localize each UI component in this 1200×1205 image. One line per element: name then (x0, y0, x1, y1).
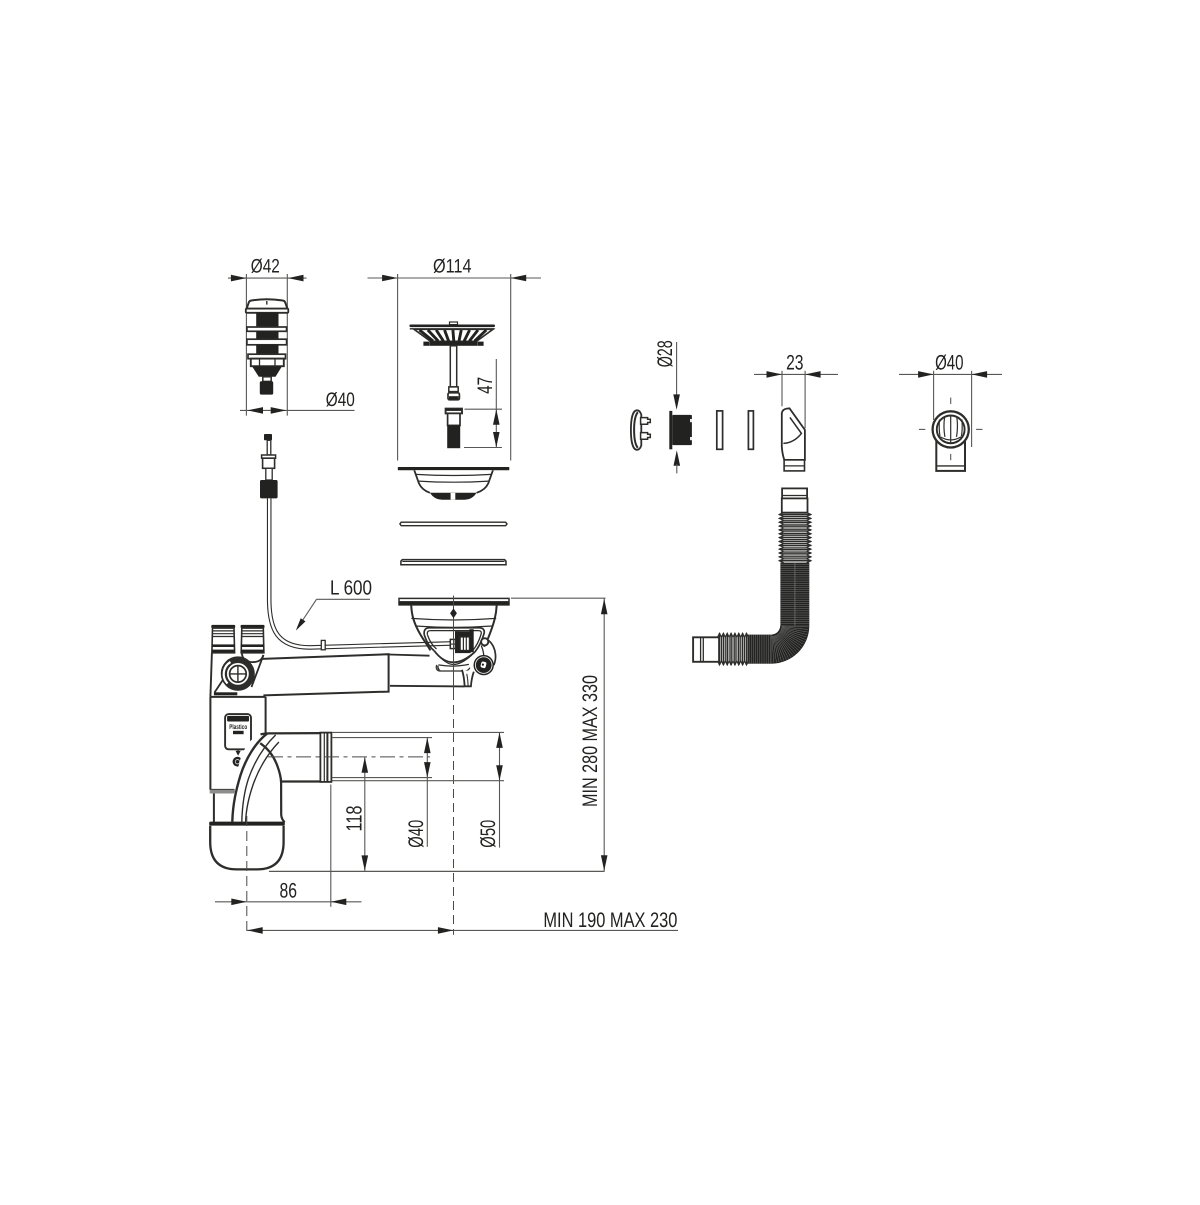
svg-text:Ø50: Ø50 (477, 820, 500, 848)
svg-text:Ø42: Ø42 (251, 255, 280, 277)
svg-text:MIN 190 MAX 230: MIN 190 MAX 230 (543, 909, 677, 932)
svg-text:Ø40: Ø40 (935, 352, 963, 375)
svg-text:47: 47 (474, 377, 497, 394)
svg-text:Ø114: Ø114 (433, 256, 472, 278)
svg-text:Ø40: Ø40 (326, 389, 355, 411)
svg-text:MIN 280 MAX 330: MIN 280 MAX 330 (579, 675, 602, 807)
svg-text:86: 86 (279, 880, 297, 903)
svg-text:Ø28: Ø28 (654, 340, 677, 367)
svg-text:L 600: L 600 (330, 576, 372, 599)
svg-text:23: 23 (786, 352, 803, 375)
svg-text:Ø40: Ø40 (405, 820, 428, 848)
svg-text:Plastico: Plastico (229, 724, 247, 731)
svg-text:118: 118 (342, 806, 367, 832)
